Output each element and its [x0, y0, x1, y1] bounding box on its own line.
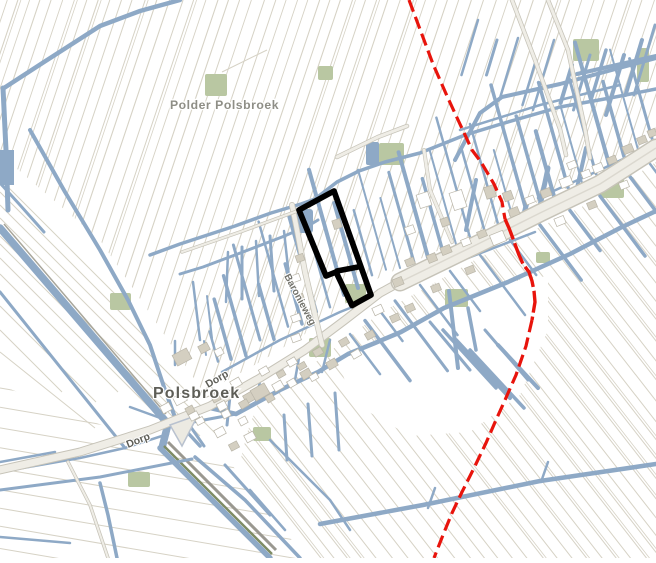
svg-text:Polder Polsbroek: Polder Polsbroek: [170, 98, 279, 112]
svg-text:Polsbroek: Polsbroek: [153, 385, 240, 402]
